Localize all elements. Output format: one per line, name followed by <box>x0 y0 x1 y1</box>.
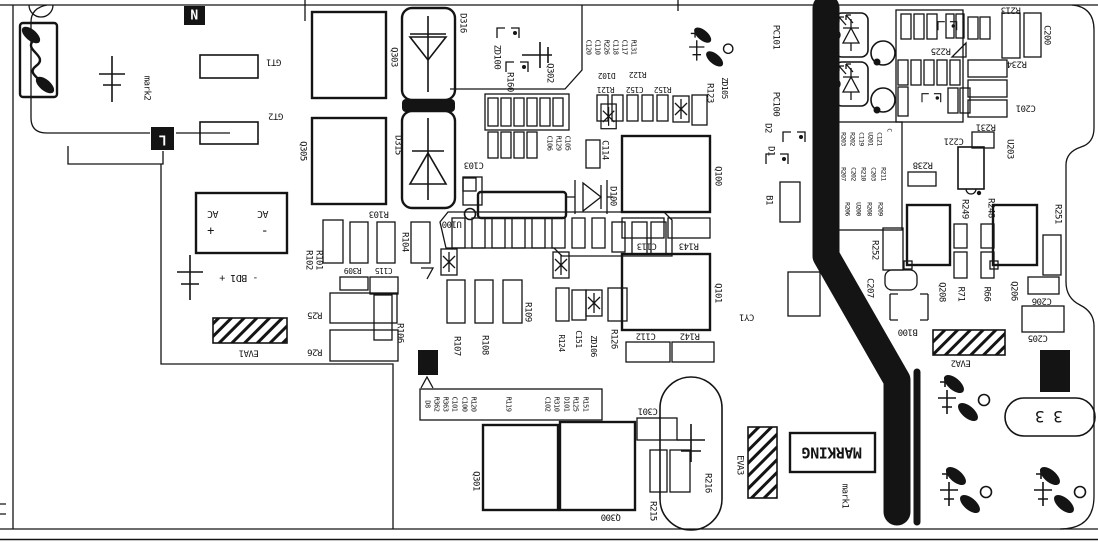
designator-q302: Q302 <box>545 63 554 83</box>
designator-zd105: ZD105 <box>720 77 728 99</box>
designator-c221: C221 <box>944 136 964 145</box>
designator-r71: R71 <box>956 287 965 302</box>
designator-r210: R210 <box>860 167 867 181</box>
designator-q208: Q208 <box>937 282 946 302</box>
designator-r211: R211 <box>880 167 887 181</box>
designator-u203: U203 <box>1005 139 1014 159</box>
designator-r106: R106 <box>395 323 404 343</box>
designator-r126: R126 <box>609 329 618 349</box>
designator-zd100: ZD100 <box>492 45 501 70</box>
designator-c110: C110 <box>594 40 601 55</box>
designator-pc101: PC101 <box>771 25 780 50</box>
designator-mark2: mark2 <box>142 76 151 101</box>
designator-u201: U201 <box>867 132 874 146</box>
designator-u200: U200 <box>855 202 862 216</box>
designator-r151: R151 <box>582 397 589 412</box>
designator-d102: D102 <box>598 71 615 79</box>
designator-r231: R231 <box>976 122 996 131</box>
designator-q303: Q303 <box>389 47 398 67</box>
designator-r207: R207 <box>840 167 847 181</box>
designator-r363: R363 <box>442 397 449 412</box>
designator-r215: R215 <box>648 501 657 521</box>
designator-r152: R152 <box>654 85 671 93</box>
designator-r26: R26 <box>308 347 323 356</box>
designator-d100: D100 <box>608 186 617 206</box>
designator-b1: B1 <box>764 195 773 205</box>
designator--: + <box>208 225 215 237</box>
designator-c200: C200 <box>1042 25 1051 45</box>
designator-q305: Q305 <box>298 141 307 161</box>
designator-c206: C206 <box>1032 296 1052 305</box>
designator-q101: Q101 <box>713 283 722 303</box>
designator-r248: R248 <box>986 198 995 218</box>
designator-r310: R310 <box>553 397 560 412</box>
designator-eva1: EVA1 <box>239 348 259 357</box>
designator-r203: R203 <box>840 132 847 146</box>
designator-r216: R216 <box>703 473 712 493</box>
designator-r209: R209 <box>877 202 884 216</box>
designator-r102: R102 <box>304 250 313 270</box>
designator-c301: C301 <box>638 406 658 415</box>
designator-r25: R25 <box>308 310 323 319</box>
designator-r160: R160 <box>505 72 514 92</box>
designator-r249: R249 <box>960 199 969 219</box>
designator-pc100: PC100 <box>771 92 780 117</box>
designator-eva2: EVA2 <box>951 358 971 367</box>
designator-c202: C202 <box>850 167 857 181</box>
designator-d1: D1 <box>766 146 775 156</box>
designator-r234: R234 <box>1007 59 1027 68</box>
designator-3-3: 3 3 <box>1035 408 1062 424</box>
designator-r104: R104 <box>400 232 409 252</box>
designator-r238: R238 <box>913 160 933 169</box>
designator-zd106: ZD106 <box>589 335 597 357</box>
designator-ac: AC <box>257 208 268 218</box>
designator-r120: R120 <box>470 397 477 412</box>
designator-c106: C106 <box>546 136 553 151</box>
designator-d315: D315 <box>393 135 402 155</box>
designator-l: L <box>159 133 166 146</box>
designator-r109: R109 <box>523 302 532 322</box>
designator-r122: R122 <box>629 70 646 78</box>
designator-r251: R251 <box>1053 204 1062 224</box>
designator-c121: C121 <box>876 132 883 146</box>
designator-r129: R129 <box>555 136 562 151</box>
designator-c105: C105 <box>564 136 571 151</box>
designator-b100: B100 <box>898 327 918 336</box>
designator-cy1: CY1 <box>740 312 755 321</box>
designator-u100: U100 <box>442 219 462 228</box>
designator-r119: R119 <box>505 397 512 412</box>
designator-r202: R202 <box>849 132 856 146</box>
designator-q301: Q301 <box>471 471 480 491</box>
designator-r252: R252 <box>870 240 879 260</box>
designator-d2: D2 <box>763 123 772 133</box>
designator-r124: R124 <box>557 334 565 351</box>
designator-c205: C205 <box>1028 333 1048 342</box>
designator-mark1: mark1 <box>840 484 849 509</box>
designator-c118: C118 <box>612 40 619 55</box>
designator-r131: R131 <box>630 40 637 55</box>
silkscreen-labels-layer: NLmark2GT1GT2Q303Q305D316D315ZD100R160Q3… <box>0 0 1098 542</box>
designator-r125: R125 <box>572 397 579 412</box>
designator-marking: MARKING <box>802 445 862 460</box>
designator-c112: C112 <box>636 331 656 340</box>
designator--: - <box>261 225 268 238</box>
designator-r107: R107 <box>452 336 461 356</box>
designator-q100: Q100 <box>713 166 722 186</box>
designator-r142: R142 <box>680 331 700 340</box>
designator-c119: C119 <box>858 132 865 146</box>
designator-gt1: GT1 <box>267 57 282 66</box>
designator-c151: C151 <box>574 330 582 347</box>
designator-eva3: EVA3 <box>735 455 744 475</box>
designator-c: C <box>886 128 893 131</box>
designator-c101: C101 <box>451 397 458 412</box>
designator-c201: C201 <box>1016 103 1036 112</box>
designator-r143: R143 <box>679 241 699 250</box>
designator-d316: D316 <box>458 13 467 33</box>
designator-r101: R101 <box>314 250 323 270</box>
designator-c115: C115 <box>375 266 392 274</box>
designator-q206: Q206 <box>1009 281 1018 301</box>
designator-r213: R213 <box>1001 5 1021 14</box>
designator-r362: R362 <box>433 397 440 412</box>
designator-r66: R66 <box>982 287 991 302</box>
designator-r225: R225 <box>931 46 951 55</box>
designator-c114: C114 <box>600 140 609 160</box>
designator-r103: R103 <box>369 209 389 218</box>
designator--bd1-: - BD1 + <box>220 272 259 282</box>
designator-q300: Q300 <box>601 512 621 521</box>
designator-r226: R226 <box>603 40 610 55</box>
designator-c207: C207 <box>865 278 874 298</box>
designator-d8: D8 <box>424 400 431 407</box>
designator-ac: AC <box>207 208 218 218</box>
pcb-assembly-drawing: NLmark2GT1GT2Q303Q305D316D315ZD100R160Q3… <box>0 0 1098 542</box>
designator-gt2: GT2 <box>269 111 284 120</box>
designator-c113: C113 <box>637 241 657 250</box>
designator-c100: C100 <box>461 397 468 412</box>
designator-c152: C152 <box>626 85 643 93</box>
designator-c103: C103 <box>464 160 484 169</box>
designator-r108: R108 <box>480 335 489 355</box>
designator-c117: C117 <box>621 40 628 55</box>
designator-d101: D101 <box>563 397 570 412</box>
designator-n: N <box>190 10 197 23</box>
designator-c203: C203 <box>870 167 877 181</box>
designator-r206: R206 <box>844 202 851 216</box>
designator-r121: R121 <box>597 85 614 93</box>
designator-r208: R208 <box>866 202 873 216</box>
designator-c120: C120 <box>585 40 592 55</box>
designator-r309: R309 <box>344 266 361 274</box>
designator-c102: C102 <box>544 397 551 412</box>
designator-r123: R123 <box>705 83 714 103</box>
